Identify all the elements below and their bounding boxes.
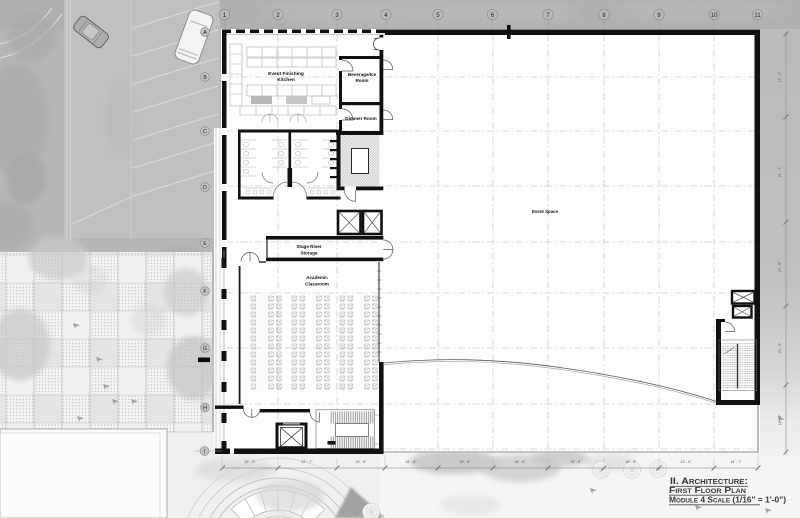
svg-text:First Floor Plan: First Floor Plan — [669, 485, 746, 495]
svg-text:18' - 8": 18' - 8" — [405, 460, 417, 464]
svg-text:Classroom: Classroom — [305, 281, 329, 286]
svg-text:D: D — [203, 185, 207, 191]
svg-text:11: 11 — [754, 12, 761, 19]
svg-text:15' - 8": 15' - 8" — [570, 460, 582, 464]
svg-text:G: G — [203, 346, 207, 352]
svg-text:Dimmer Room: Dimmer Room — [345, 116, 376, 121]
svg-text:19' - 5": 19' - 5" — [244, 460, 256, 464]
svg-text:20' - 5": 20' - 5" — [778, 342, 782, 353]
svg-text:15' - 8": 15' - 8" — [355, 460, 367, 464]
svg-text:E: E — [203, 241, 207, 247]
svg-text:7: 7 — [546, 12, 550, 19]
svg-text:14' - 3": 14' - 3" — [778, 414, 782, 425]
svg-text:12' - 6": 12' - 6" — [680, 460, 692, 464]
svg-text:Stage Riser: Stage Riser — [296, 244, 321, 249]
svg-text:17' - 5": 17' - 5" — [778, 261, 782, 272]
svg-text:C: C — [203, 129, 207, 135]
svg-text:10: 10 — [711, 12, 718, 19]
svg-text:2: 2 — [276, 12, 280, 19]
svg-text:Kitchen: Kitchen — [277, 77, 295, 83]
svg-text:14' - 7": 14' - 7" — [730, 460, 742, 464]
svg-text:6: 6 — [491, 12, 495, 19]
svg-text:8: 8 — [602, 12, 606, 19]
svg-text:Event Finishing: Event Finishing — [268, 71, 304, 77]
svg-text:3: 3 — [335, 12, 339, 19]
svg-text:17' - 2": 17' - 2" — [778, 71, 782, 82]
svg-text:Module 4 Scale (1/16" = 1'-0"): Module 4 Scale (1/16" = 1'-0") — [669, 495, 786, 504]
svg-text:H: H — [203, 406, 207, 412]
svg-text:1: 1 — [223, 12, 227, 19]
svg-text:9: 9 — [657, 12, 661, 19]
svg-text:4: 4 — [384, 12, 388, 19]
svg-text:18' - 8": 18' - 8" — [625, 460, 637, 464]
svg-text:Beverage/Ice: Beverage/Ice — [348, 72, 377, 77]
svg-text:18' - 8": 18' - 8" — [459, 460, 471, 464]
svg-text:A: A — [203, 30, 207, 36]
svg-text:I: I — [204, 449, 206, 455]
svg-text:Academic: Academic — [306, 275, 328, 280]
svg-text:Room: Room — [355, 78, 368, 83]
svg-text:Storage: Storage — [300, 250, 318, 255]
svg-text:5: 5 — [436, 12, 440, 19]
svg-text:22' - 7": 22' - 7" — [301, 460, 313, 464]
svg-text:B: B — [203, 75, 207, 81]
svg-text:Event Space: Event Space — [532, 209, 559, 214]
svg-text:21' - 7": 21' - 7" — [778, 166, 782, 177]
svg-text:18' - 8": 18' - 8" — [514, 460, 526, 464]
